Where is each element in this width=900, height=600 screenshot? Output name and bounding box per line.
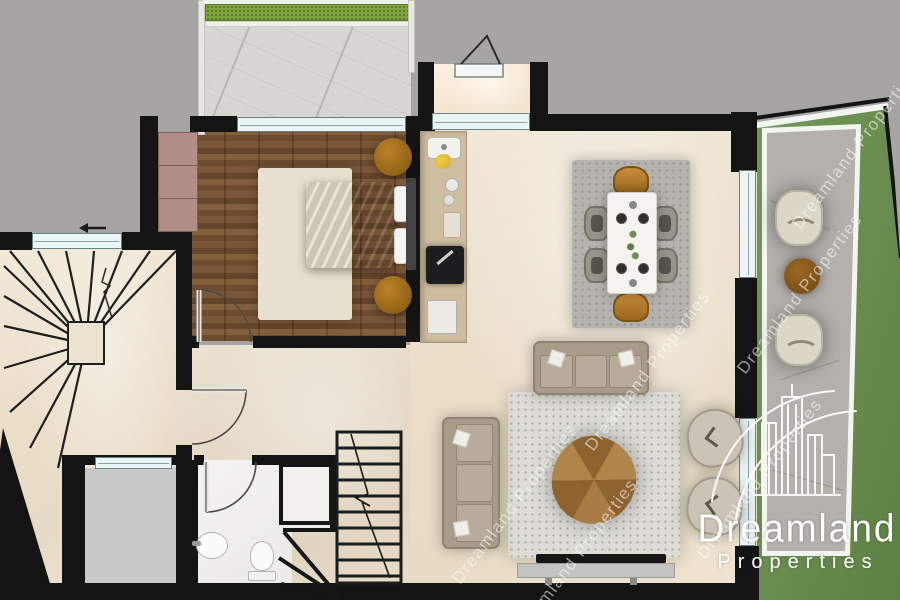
entry-door-symbol: [455, 36, 503, 77]
left-arrow-icon: [79, 223, 106, 233]
door-swing-arc: [199, 290, 251, 342]
internal-stairs-winders: [279, 530, 340, 598]
logo-title: Dreamland: [688, 507, 900, 552]
door-swing-arc: [192, 390, 246, 444]
wall-diagonal-corner: [0, 428, 55, 600]
floor-plan: Dreamland Properties Dreamland Propertie…: [0, 0, 900, 600]
logo-subtitle: Properties: [704, 551, 892, 574]
door-swing-arc: [206, 462, 256, 512]
stair-break-line: [351, 434, 390, 578]
internal-stairs: [337, 432, 401, 583]
building-skyline-icon: [706, 383, 898, 525]
stairwell-landing: [68, 322, 104, 364]
stair-direction-line: [102, 268, 112, 318]
